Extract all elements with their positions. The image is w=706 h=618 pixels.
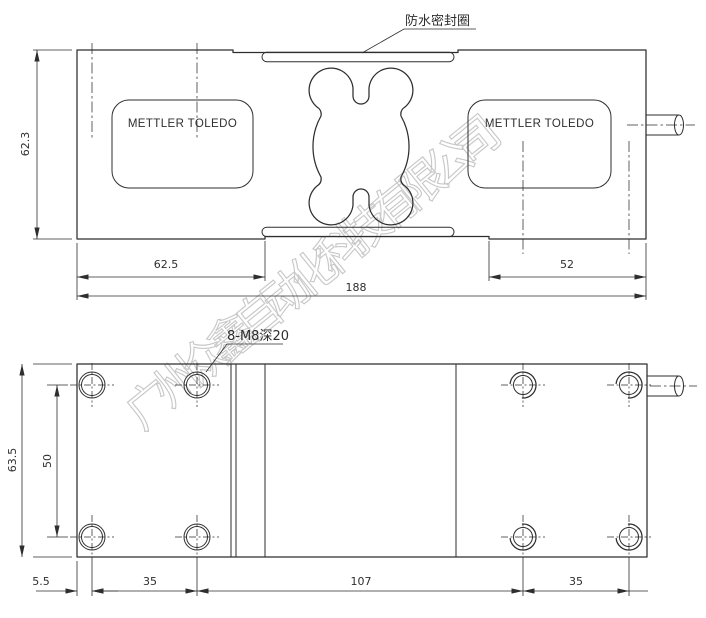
dim-text-63-5: 63.5: [6, 448, 19, 473]
tapped-hole: [175, 515, 219, 559]
callout-seal-ring: 防水密封圈: [362, 13, 476, 53]
hatch-area: [265, 364, 456, 557]
cable-stub-bottom-view: [647, 376, 697, 396]
nameplate-left: [112, 100, 253, 188]
threaded-hole: [607, 515, 651, 559]
load-cell-technical-drawing: 广州众鑫自动化科技有限公司 METTLER TOLEDO METTLER TOL…: [0, 0, 706, 618]
callout-holes-text: 8-M8深20: [227, 329, 289, 344]
threaded-hole: [607, 363, 651, 407]
dim-text-62-3: 62.3: [19, 132, 32, 157]
dim-text-5-5: 5.5: [32, 575, 50, 588]
brand-text-left: METTLER TOLEDO: [128, 118, 237, 130]
dim-text-35-left: 35: [143, 575, 157, 588]
callout-seal-text: 防水密封圈: [405, 13, 470, 29]
dim-text-52: 52: [560, 258, 574, 271]
threaded-hole: [501, 515, 545, 559]
dim-text-50: 50: [41, 454, 54, 468]
bottom-view: 63.5 50 5.5 35 107 35 8-M8深20: [6, 329, 697, 596]
dim-height-bottom-view: 63.5: [6, 364, 72, 557]
dim-text-35-right: 35: [569, 575, 583, 588]
dim-text-62-5: 62.5: [154, 258, 179, 271]
brand-text-right: METTLER TOLEDO: [485, 118, 594, 130]
seal-strip-top: [262, 52, 454, 61]
dim-chain-bottom: 5.5 35 107 35: [32, 559, 648, 596]
dim-text-107: 107: [351, 575, 372, 588]
dim-hole-rows: 50: [41, 385, 68, 537]
watermark-text: 广州众鑫自动化科技有限公司: [115, 108, 507, 440]
threaded-hole: [501, 363, 545, 407]
dim-height-top-view: 62.3: [19, 50, 72, 239]
dim-text-188: 188: [346, 281, 367, 294]
